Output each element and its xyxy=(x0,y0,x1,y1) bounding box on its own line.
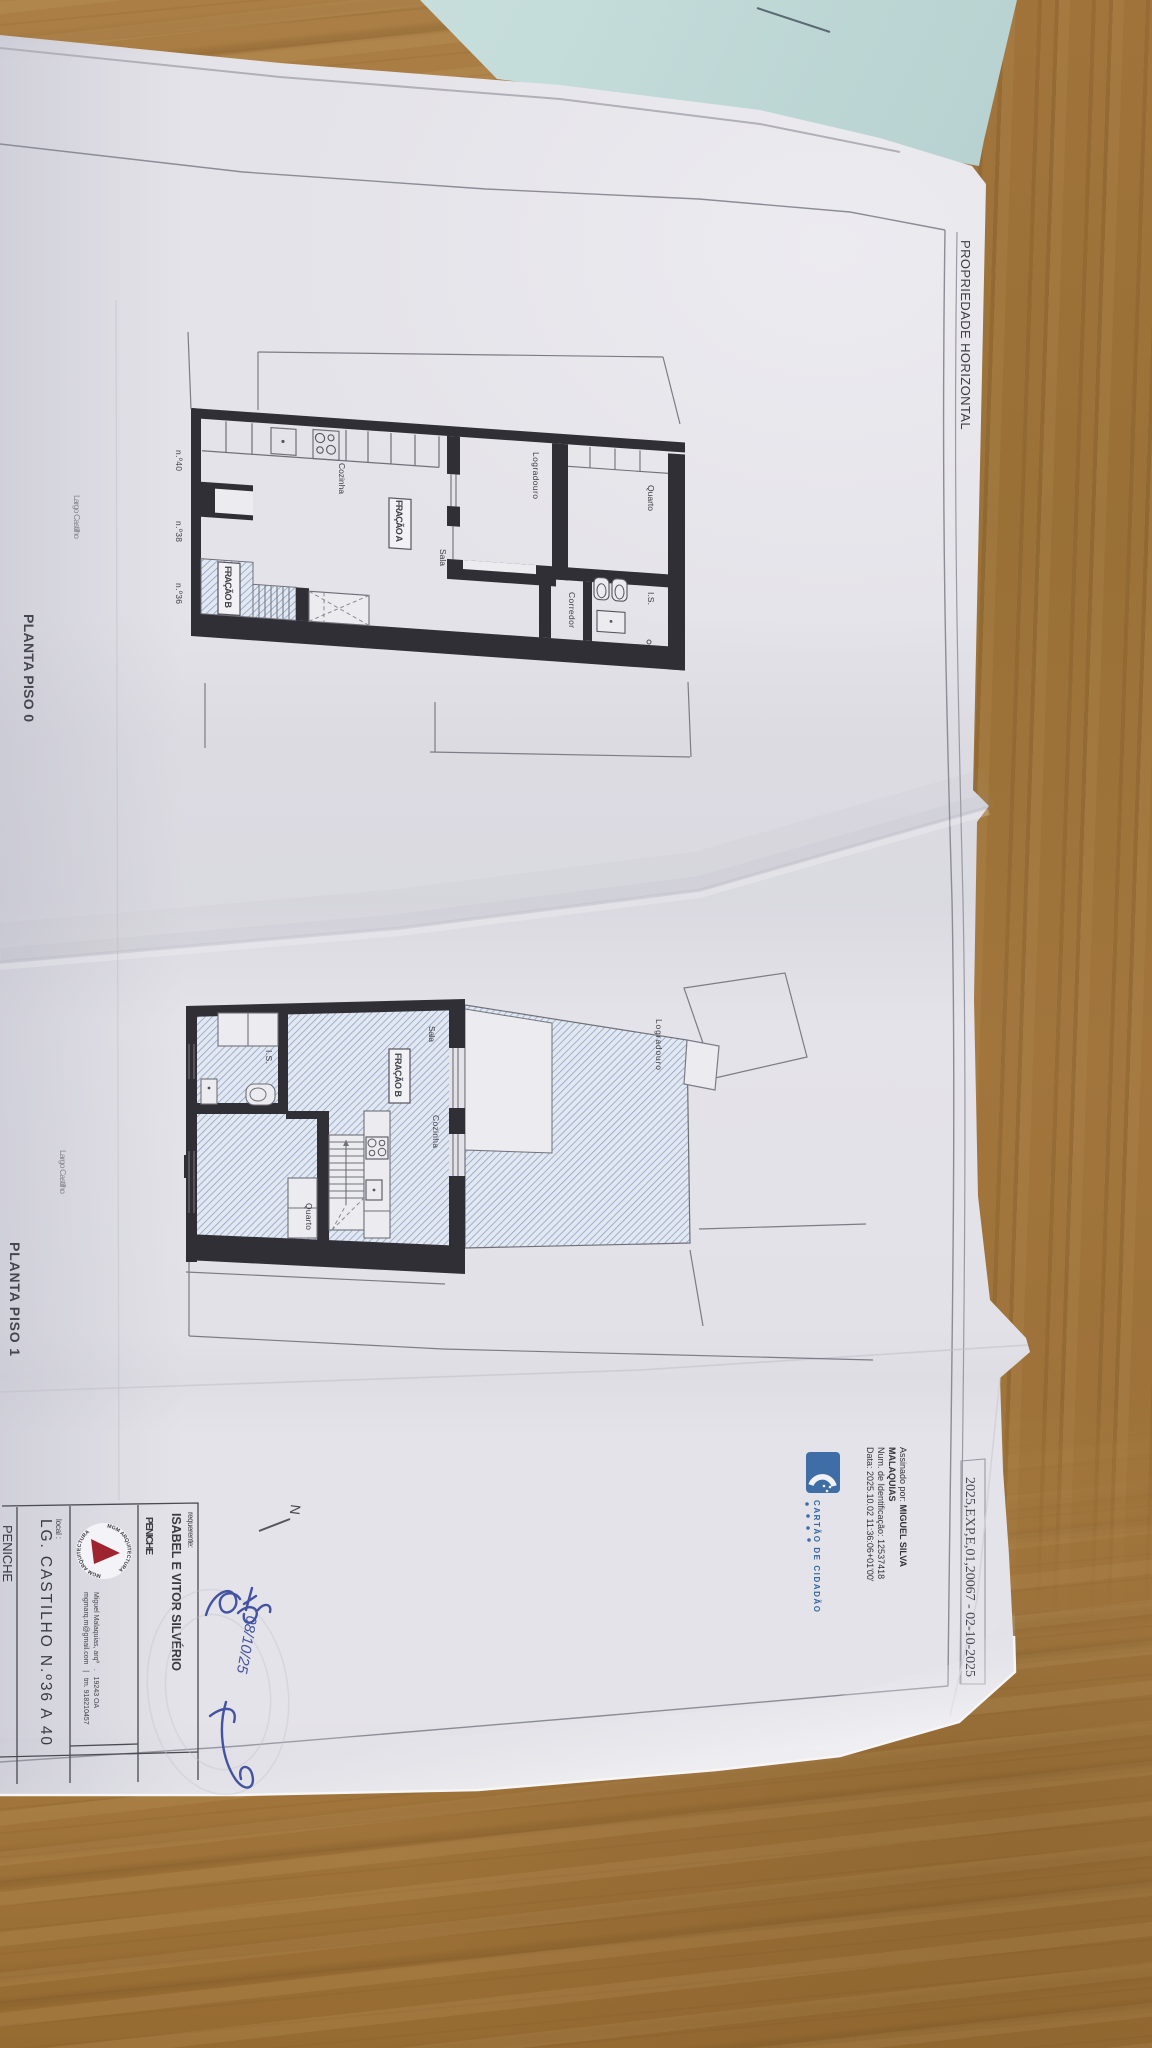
svg-text:Corredor: Corredor xyxy=(567,592,577,628)
svg-text:LG. CASTILHO N.º36 A 40: LG. CASTILHO N.º36 A 40 xyxy=(37,1519,54,1745)
svg-text:Quarto: Quarto xyxy=(304,1203,314,1230)
svg-text:CARTÃO DE CIDADÃO: CARTÃO DE CIDADÃO xyxy=(812,1500,821,1612)
svg-text:I.S.: I.S. xyxy=(264,1050,274,1064)
svg-text:Logradouro: Logradouro xyxy=(531,452,541,499)
svg-text:Miguel Malaquias, arqº . 1: Miguel Malaquias, arqº . 19243 OA xyxy=(92,1592,99,1709)
svg-text:Largo Castilho: Largo Castilho xyxy=(58,1150,68,1194)
svg-text:PLANTA PISO 1: PLANTA PISO 1 xyxy=(7,1242,23,1356)
svg-text:Assinado por: MIGUEL SILVA: Assinado por: MIGUEL SILVA xyxy=(898,1447,908,1568)
svg-text:Cozinha: Cozinha xyxy=(337,463,347,494)
svg-text:PLANTA PISO 0: PLANTA PISO 0 xyxy=(21,614,37,722)
svg-text:Cozinha: Cozinha xyxy=(431,1115,441,1148)
svg-text:Quarto: Quarto xyxy=(646,485,656,511)
svg-text:FRAÇÃO B: FRAÇÃO B xyxy=(223,566,233,609)
svg-text:Data: 2025.10.02 11:36:06+01'0: Data: 2025.10.02 11:36:06+01'00' xyxy=(865,1447,875,1582)
svg-text:Num. de Identificação: 1253741: Num. de Identificação: 12537418 xyxy=(876,1447,886,1579)
svg-text:N: N xyxy=(287,1504,304,1516)
svg-text:Logradouro: Logradouro xyxy=(654,1019,664,1070)
svg-text:Sala: Sala xyxy=(438,549,448,566)
svg-text:n.º36: n.º36 xyxy=(174,583,184,604)
svg-text:PROPRIEDADE HORIZONTAL: PROPRIEDADE HORIZONTAL xyxy=(958,240,973,430)
svg-text:2025,EXP,E,01,20067 - 02-10-20: 2025,EXP,E,01,20067 - 02-10-2025 xyxy=(962,1477,977,1677)
svg-text:requerente:: requerente: xyxy=(186,1512,195,1548)
svg-text:FRAÇÃO A: FRAÇÃO A xyxy=(394,500,404,543)
svg-text:Largo Castilho: Largo Castilho xyxy=(72,495,82,539)
svg-text:PENICHE: PENICHE xyxy=(0,1525,15,1582)
svg-text:FRAÇÃO B: FRAÇÃO B xyxy=(393,1053,403,1098)
svg-text:n.º38: n.º38 xyxy=(174,521,184,542)
svg-text:MALAQUIAS: MALAQUIAS xyxy=(887,1447,897,1502)
svg-text:n.º40: n.º40 xyxy=(174,450,184,471)
svg-text:I.S.: I.S. xyxy=(646,592,656,605)
svg-text:Sala: Sala xyxy=(427,1026,437,1042)
svg-text:PENICHE: PENICHE xyxy=(143,1517,154,1555)
svg-text:mgmarq.m@gmail.com | tm. 9: mgmarq.m@gmail.com | tm. 918210457 xyxy=(82,1592,89,1725)
svg-text:local :: local : xyxy=(54,1519,63,1539)
